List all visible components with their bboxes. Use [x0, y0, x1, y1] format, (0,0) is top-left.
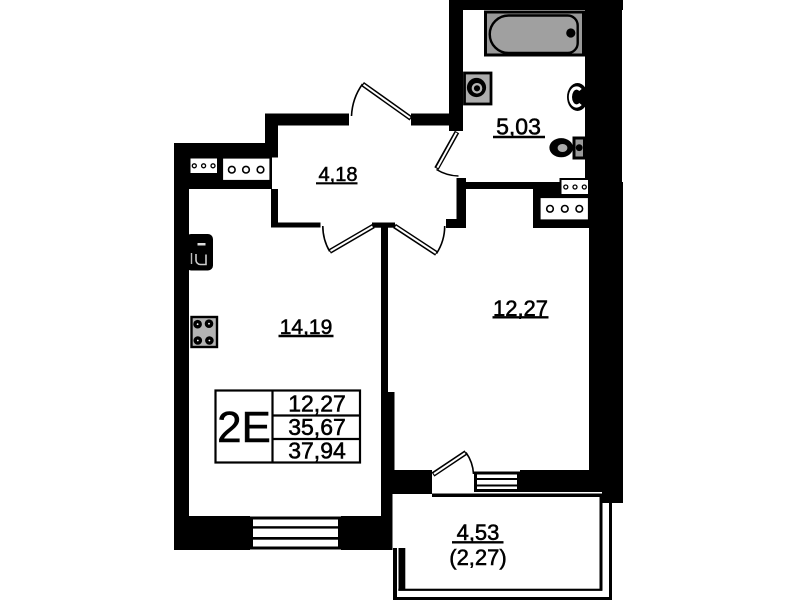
svg-text:37,94: 37,94 — [288, 438, 346, 464]
svg-text:(2,27): (2,27) — [449, 545, 506, 570]
svg-text:35,67: 35,67 — [288, 414, 346, 440]
svg-text:12,27: 12,27 — [288, 391, 346, 417]
svg-text:5,03: 5,03 — [496, 114, 541, 140]
svg-text:2Е: 2Е — [217, 403, 271, 452]
